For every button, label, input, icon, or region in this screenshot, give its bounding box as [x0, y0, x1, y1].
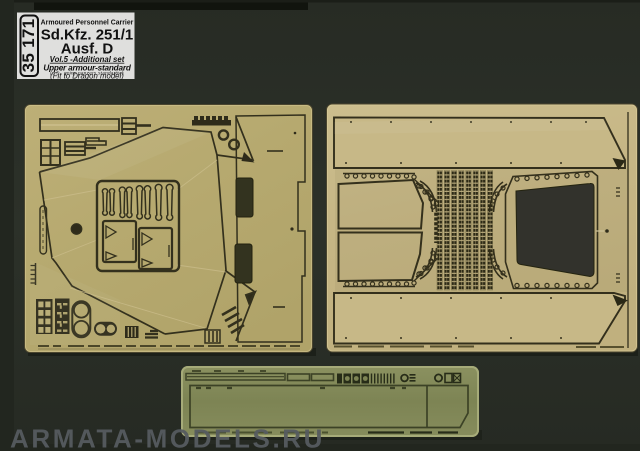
svg-text:35 171: 35 171 [19, 19, 38, 73]
svg-text:ARMATA-MODELS.RU: ARMATA-MODELS.RU [10, 424, 325, 451]
svg-text:Vol.5 -Additional set: Vol.5 -Additional set [50, 55, 125, 64]
svg-text:(Fit to Dragon model): (Fit to Dragon model) [50, 72, 124, 81]
svg-text:Armoured Personnel Carrier: Armoured Personnel Carrier [41, 20, 134, 27]
